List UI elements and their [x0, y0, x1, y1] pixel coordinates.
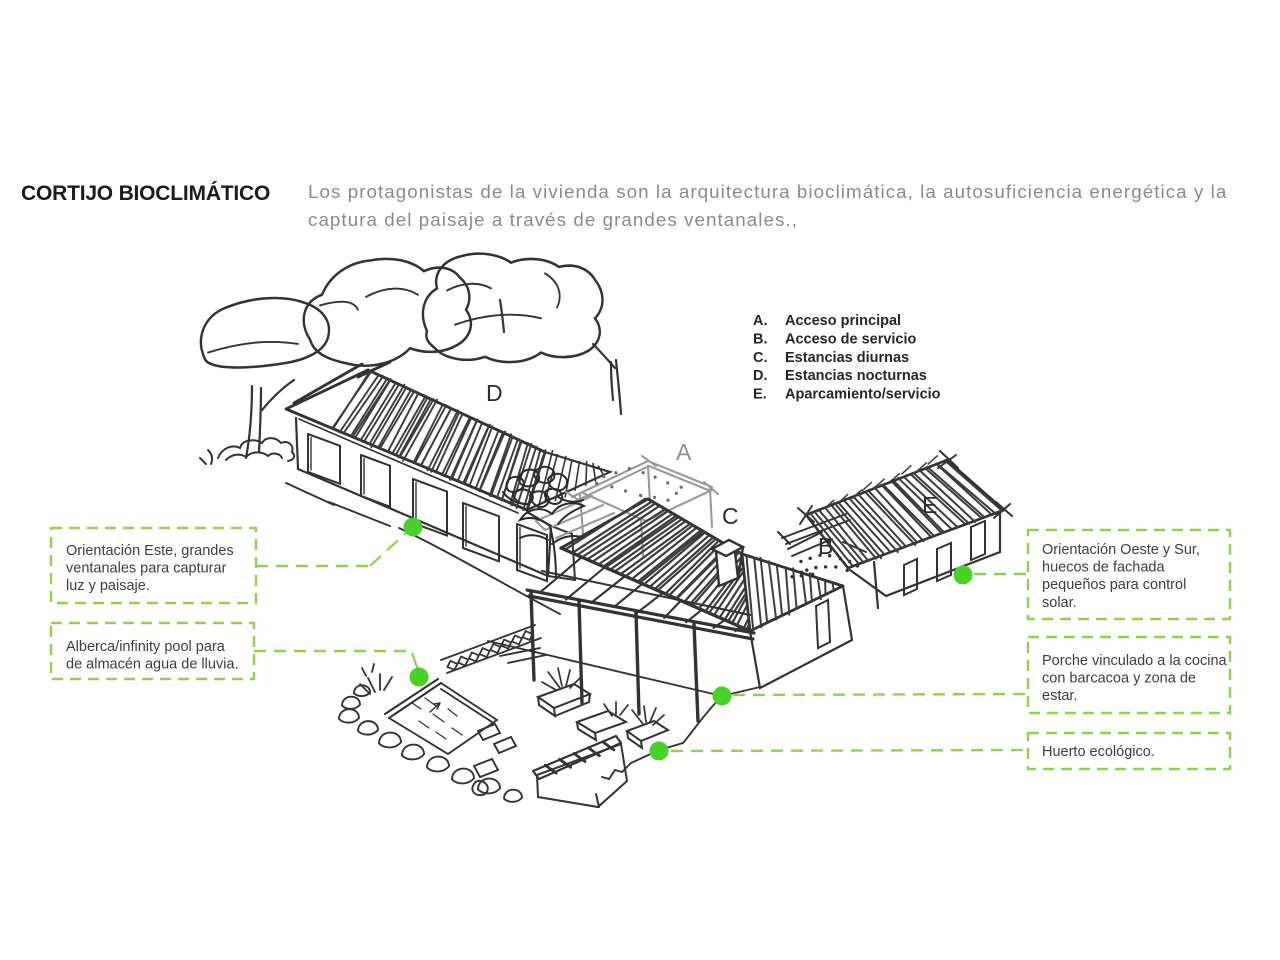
svg-text:Alberca/infinity pool para: Alberca/infinity pool para [66, 639, 226, 655]
svg-text:A.: A. [753, 313, 768, 329]
svg-text:Los protagonistas de la vivien: Los protagonistas de la vivienda son la … [308, 181, 1227, 202]
svg-text:luz y paisaje.: luz y paisaje. [66, 578, 150, 594]
svg-text:Huerto ecológico.: Huerto ecológico. [1042, 744, 1155, 760]
svg-text:estar.: estar. [1042, 688, 1077, 704]
svg-text:D.: D. [753, 368, 768, 384]
svg-text:con barcacoa y zona de: con barcacoa y zona de [1042, 671, 1196, 687]
svg-text:Estancias diurnas: Estancias diurnas [785, 350, 909, 366]
svg-text:Acceso principal: Acceso principal [785, 313, 901, 329]
svg-text:D: D [486, 380, 503, 406]
svg-text:C: C [722, 503, 739, 529]
svg-text:Porche vinculado a la cocina: Porche vinculado a la cocina [1042, 653, 1228, 669]
svg-text:CORTIJO BIOCLIMÁTICO: CORTIJO BIOCLIMÁTICO [21, 182, 270, 205]
svg-text:Acceso de servicio: Acceso de servicio [785, 331, 917, 347]
svg-text:solar.: solar. [1042, 595, 1077, 611]
svg-text:Aparcamiento/servicio: Aparcamiento/servicio [785, 387, 941, 403]
svg-text:Orientación Este, grandes: Orientación Este, grandes [66, 543, 234, 559]
svg-text:de almacén agua de lluvia.: de almacén agua de lluvia. [66, 657, 239, 673]
svg-text:E.: E. [753, 387, 767, 403]
svg-text:pequeños para control: pequeños para control [1042, 577, 1186, 593]
svg-text:Orientación Oeste y Sur,: Orientación Oeste y Sur, [1042, 542, 1200, 558]
svg-text:ventanales para capturar: ventanales para capturar [66, 561, 227, 577]
svg-text:captura del paisaje a través d: captura del paisaje a través de grandes … [308, 209, 798, 230]
svg-text:Estancias nocturnas: Estancias nocturnas [785, 368, 927, 384]
svg-text:A: A [676, 439, 692, 465]
svg-text:huecos de fachada: huecos de fachada [1042, 560, 1165, 576]
svg-text:E: E [922, 492, 937, 518]
svg-text:C.: C. [753, 350, 768, 366]
svg-text:B.: B. [753, 331, 768, 347]
